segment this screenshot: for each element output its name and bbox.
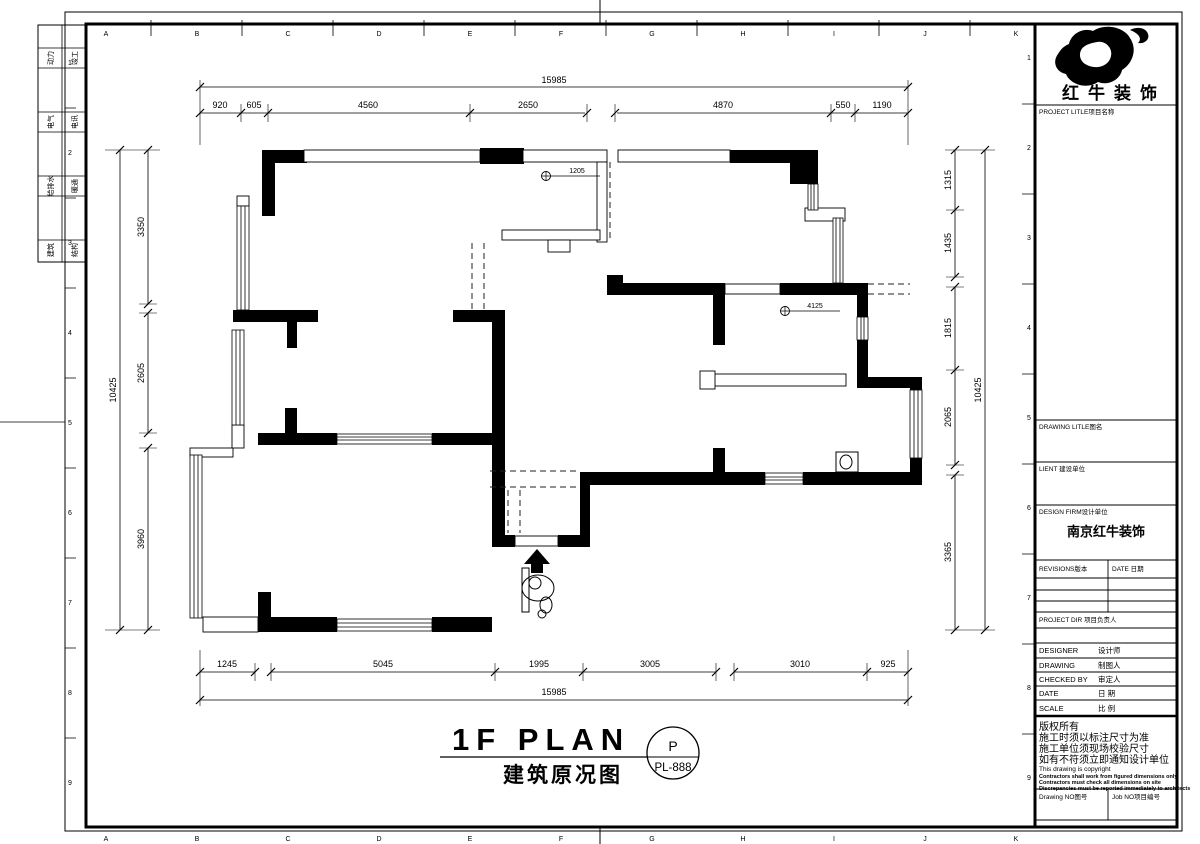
scale-cn: 比 例	[1098, 703, 1115, 713]
grid-letter: F	[559, 836, 563, 843]
dim: 920	[212, 100, 227, 110]
grid-letter: K	[1014, 836, 1019, 843]
stamp-code: PL-888	[654, 762, 691, 774]
dim: 2605	[136, 363, 146, 383]
copyright-line-en: This drawing is copyright	[1039, 766, 1111, 773]
fold-number: 6	[1027, 505, 1031, 512]
copyright-block: 版权所有 施工时须以标注尺寸为准 施工单位须现场校验尺寸 如有不符须立即通知设计…	[1039, 720, 1190, 792]
counter-end	[700, 371, 715, 389]
copyright-small: Discrepancies must be reported immediate…	[1039, 786, 1190, 792]
dim: 1815	[943, 318, 953, 338]
entry-figure	[522, 568, 554, 618]
project-dir-label: PROJECT DIR 项目负责人	[1039, 615, 1117, 624]
dim-bottom-overall: 15985	[541, 687, 566, 697]
dim: 925	[880, 659, 895, 669]
grid-letter: G	[649, 836, 654, 843]
dim: 3960	[136, 529, 146, 549]
drawing-no-label: Drawing NO图号	[1039, 793, 1088, 801]
fold-number: 4	[1027, 325, 1031, 332]
discipline-label: 动力	[46, 51, 55, 65]
grid-letter: E	[468, 31, 473, 38]
dim-left-overall: 10425	[108, 377, 118, 402]
design-firm-name: 南京红牛装饰	[1067, 524, 1145, 539]
dim: 3365	[943, 542, 953, 562]
drawing-label: DRAWING	[1039, 661, 1075, 670]
fold-number: 5	[1027, 415, 1031, 422]
plan-title-cn: 建筑原况图	[503, 763, 623, 787]
fold-number: 3	[1027, 235, 1031, 242]
discipline-label: 电讯	[70, 115, 79, 129]
dim: 550	[835, 100, 850, 110]
datum-1: 1205	[542, 168, 601, 181]
grid-letter: B	[195, 31, 200, 38]
logo-text: 红牛装饰	[1062, 83, 1166, 103]
copyright-line: 施工时须以标注尺寸为准	[1039, 731, 1149, 744]
grid-letter: F	[559, 31, 563, 38]
toilet-icon	[836, 452, 858, 472]
grid-letter: G	[649, 31, 654, 38]
fold-number: 1	[1027, 55, 1031, 62]
project-label: PROJECT LITLE项目名称	[1039, 107, 1115, 116]
date-cn: 日 期	[1098, 689, 1115, 698]
bath-fixture	[502, 230, 600, 240]
discipline-label: 结构	[70, 243, 79, 257]
grid-letter: H	[740, 31, 745, 38]
dim: 3005	[640, 659, 660, 669]
scale-label: SCALE	[1039, 704, 1064, 713]
revisions-label: REVISIONS版本	[1039, 564, 1088, 573]
grid-letter: I	[833, 31, 835, 38]
window	[237, 206, 249, 310]
fold-numbers-left: 1 2 3 4 5 6 7 8 9	[65, 60, 76, 787]
stamp-letter: P	[668, 738, 677, 754]
discipline-label: 给排水	[46, 176, 55, 197]
drawing-title-label: DRAWING LITLE图名	[1039, 422, 1102, 431]
designer-label: DESIGNER	[1039, 646, 1079, 655]
discipline-label: 竣工	[70, 51, 79, 65]
dim: 1245	[217, 659, 237, 669]
grid-letter: C	[285, 836, 290, 843]
window	[857, 317, 868, 340]
grid-letter: D	[376, 836, 381, 843]
grid-letter: J	[923, 31, 927, 38]
dim: 1190	[872, 100, 891, 110]
window	[337, 434, 432, 444]
window	[337, 619, 432, 631]
grid-letter: E	[468, 836, 473, 843]
dim: 4560	[358, 100, 378, 110]
window	[232, 330, 244, 425]
checked-label: CHECKED BY	[1039, 675, 1088, 684]
fold-number: 4	[68, 330, 72, 337]
window	[833, 218, 843, 283]
dim: 1315	[943, 170, 953, 190]
checked-cn: 审定人	[1098, 674, 1121, 684]
designer-cn: 设计师	[1098, 645, 1121, 655]
grid-letter: D	[376, 31, 381, 38]
plan-number-stamp: P PL-888	[647, 727, 699, 779]
date-label: DATE	[1039, 689, 1058, 698]
grid-letter: J	[923, 836, 927, 843]
window	[190, 455, 202, 618]
fold-numbers-right: 1 2 3 4 5 6 7 8 9	[1022, 55, 1035, 782]
counter	[714, 374, 846, 386]
fold-number: 5	[68, 420, 72, 427]
drawing-cn: 制图人	[1098, 660, 1121, 670]
discipline-label: 电气	[46, 115, 55, 129]
fold-number: 8	[68, 690, 72, 697]
revisions-date-label: DATE 日期	[1112, 565, 1144, 573]
dim-right-overall: 10425	[973, 377, 983, 402]
fold-number: 7	[1027, 595, 1031, 602]
bath-fixture-notch	[548, 240, 570, 252]
grid-letter: A	[104, 836, 109, 843]
window	[765, 473, 803, 484]
dim: 1995	[529, 659, 549, 669]
fold-number: 6	[68, 510, 72, 517]
entry-door-opening	[515, 536, 558, 546]
copyright-line: 如有不符须立即通知设计单位	[1039, 753, 1169, 766]
dim: 605	[246, 100, 261, 110]
dim: 1435	[943, 233, 953, 253]
job-no-label: Job NO项目编号	[1112, 792, 1161, 801]
fold-number: 9	[68, 780, 72, 787]
discipline-label: 暖通	[70, 179, 79, 193]
discipline-label: 建筑	[46, 243, 55, 257]
fold-number: 9	[1027, 775, 1031, 782]
dim: 3350	[136, 217, 146, 237]
grid-letter: A	[104, 31, 109, 38]
dim: 2065	[943, 407, 953, 427]
design-firm-label: DESIGN FIRM设计单位	[1039, 507, 1108, 516]
entry-arrow-icon	[524, 549, 550, 573]
grid-letter: C	[285, 31, 290, 38]
fold-number: 7	[68, 600, 72, 607]
datum-label: 4125	[807, 303, 823, 310]
copyright-line: 版权所有	[1039, 720, 1079, 733]
window	[910, 390, 922, 458]
fold-number: 2	[1027, 145, 1031, 152]
dim: 3010	[790, 659, 810, 669]
fold-number: 2	[68, 150, 72, 157]
plan-title-en: 1F PLAN	[452, 722, 630, 757]
plan-thin-walls	[190, 150, 846, 632]
grid-letter: I	[833, 836, 835, 843]
datum-2: 4125	[781, 303, 841, 316]
datum-label: 1205	[569, 168, 585, 175]
drawing-sheet: A B C D E F G H I J K A B C D E F G H I …	[0, 0, 1200, 844]
dim: 4870	[713, 100, 733, 110]
plan-title: 1F PLAN 建筑原况图 P PL-888	[440, 722, 699, 787]
discipline-table: 动力 竣工 电气 电讯 给排水 暖通 建筑 结构	[38, 25, 86, 262]
door-opening	[725, 284, 780, 294]
title-block: 红牛装饰 PROJECT LITLE项目名称 DRAWING LITLE图名 L…	[1035, 27, 1190, 820]
dim: 2650	[518, 100, 538, 110]
sheet-borders	[0, 0, 1182, 844]
dim: 5045	[373, 659, 393, 669]
grid-letter: K	[1014, 31, 1019, 38]
dim-top-overall: 15985	[541, 75, 566, 85]
copyright-line: 施工单位须现场校验尺寸	[1039, 742, 1149, 755]
grid-letters-bottom: A B C D E F G H I J K	[104, 836, 1019, 843]
bull-logo	[1055, 27, 1148, 86]
grid-letter: H	[740, 836, 745, 843]
grid-letter: B	[195, 836, 200, 843]
window	[808, 184, 818, 210]
client-label: LIENT 建设单位	[1039, 464, 1086, 473]
fold-number: 8	[1027, 685, 1031, 692]
